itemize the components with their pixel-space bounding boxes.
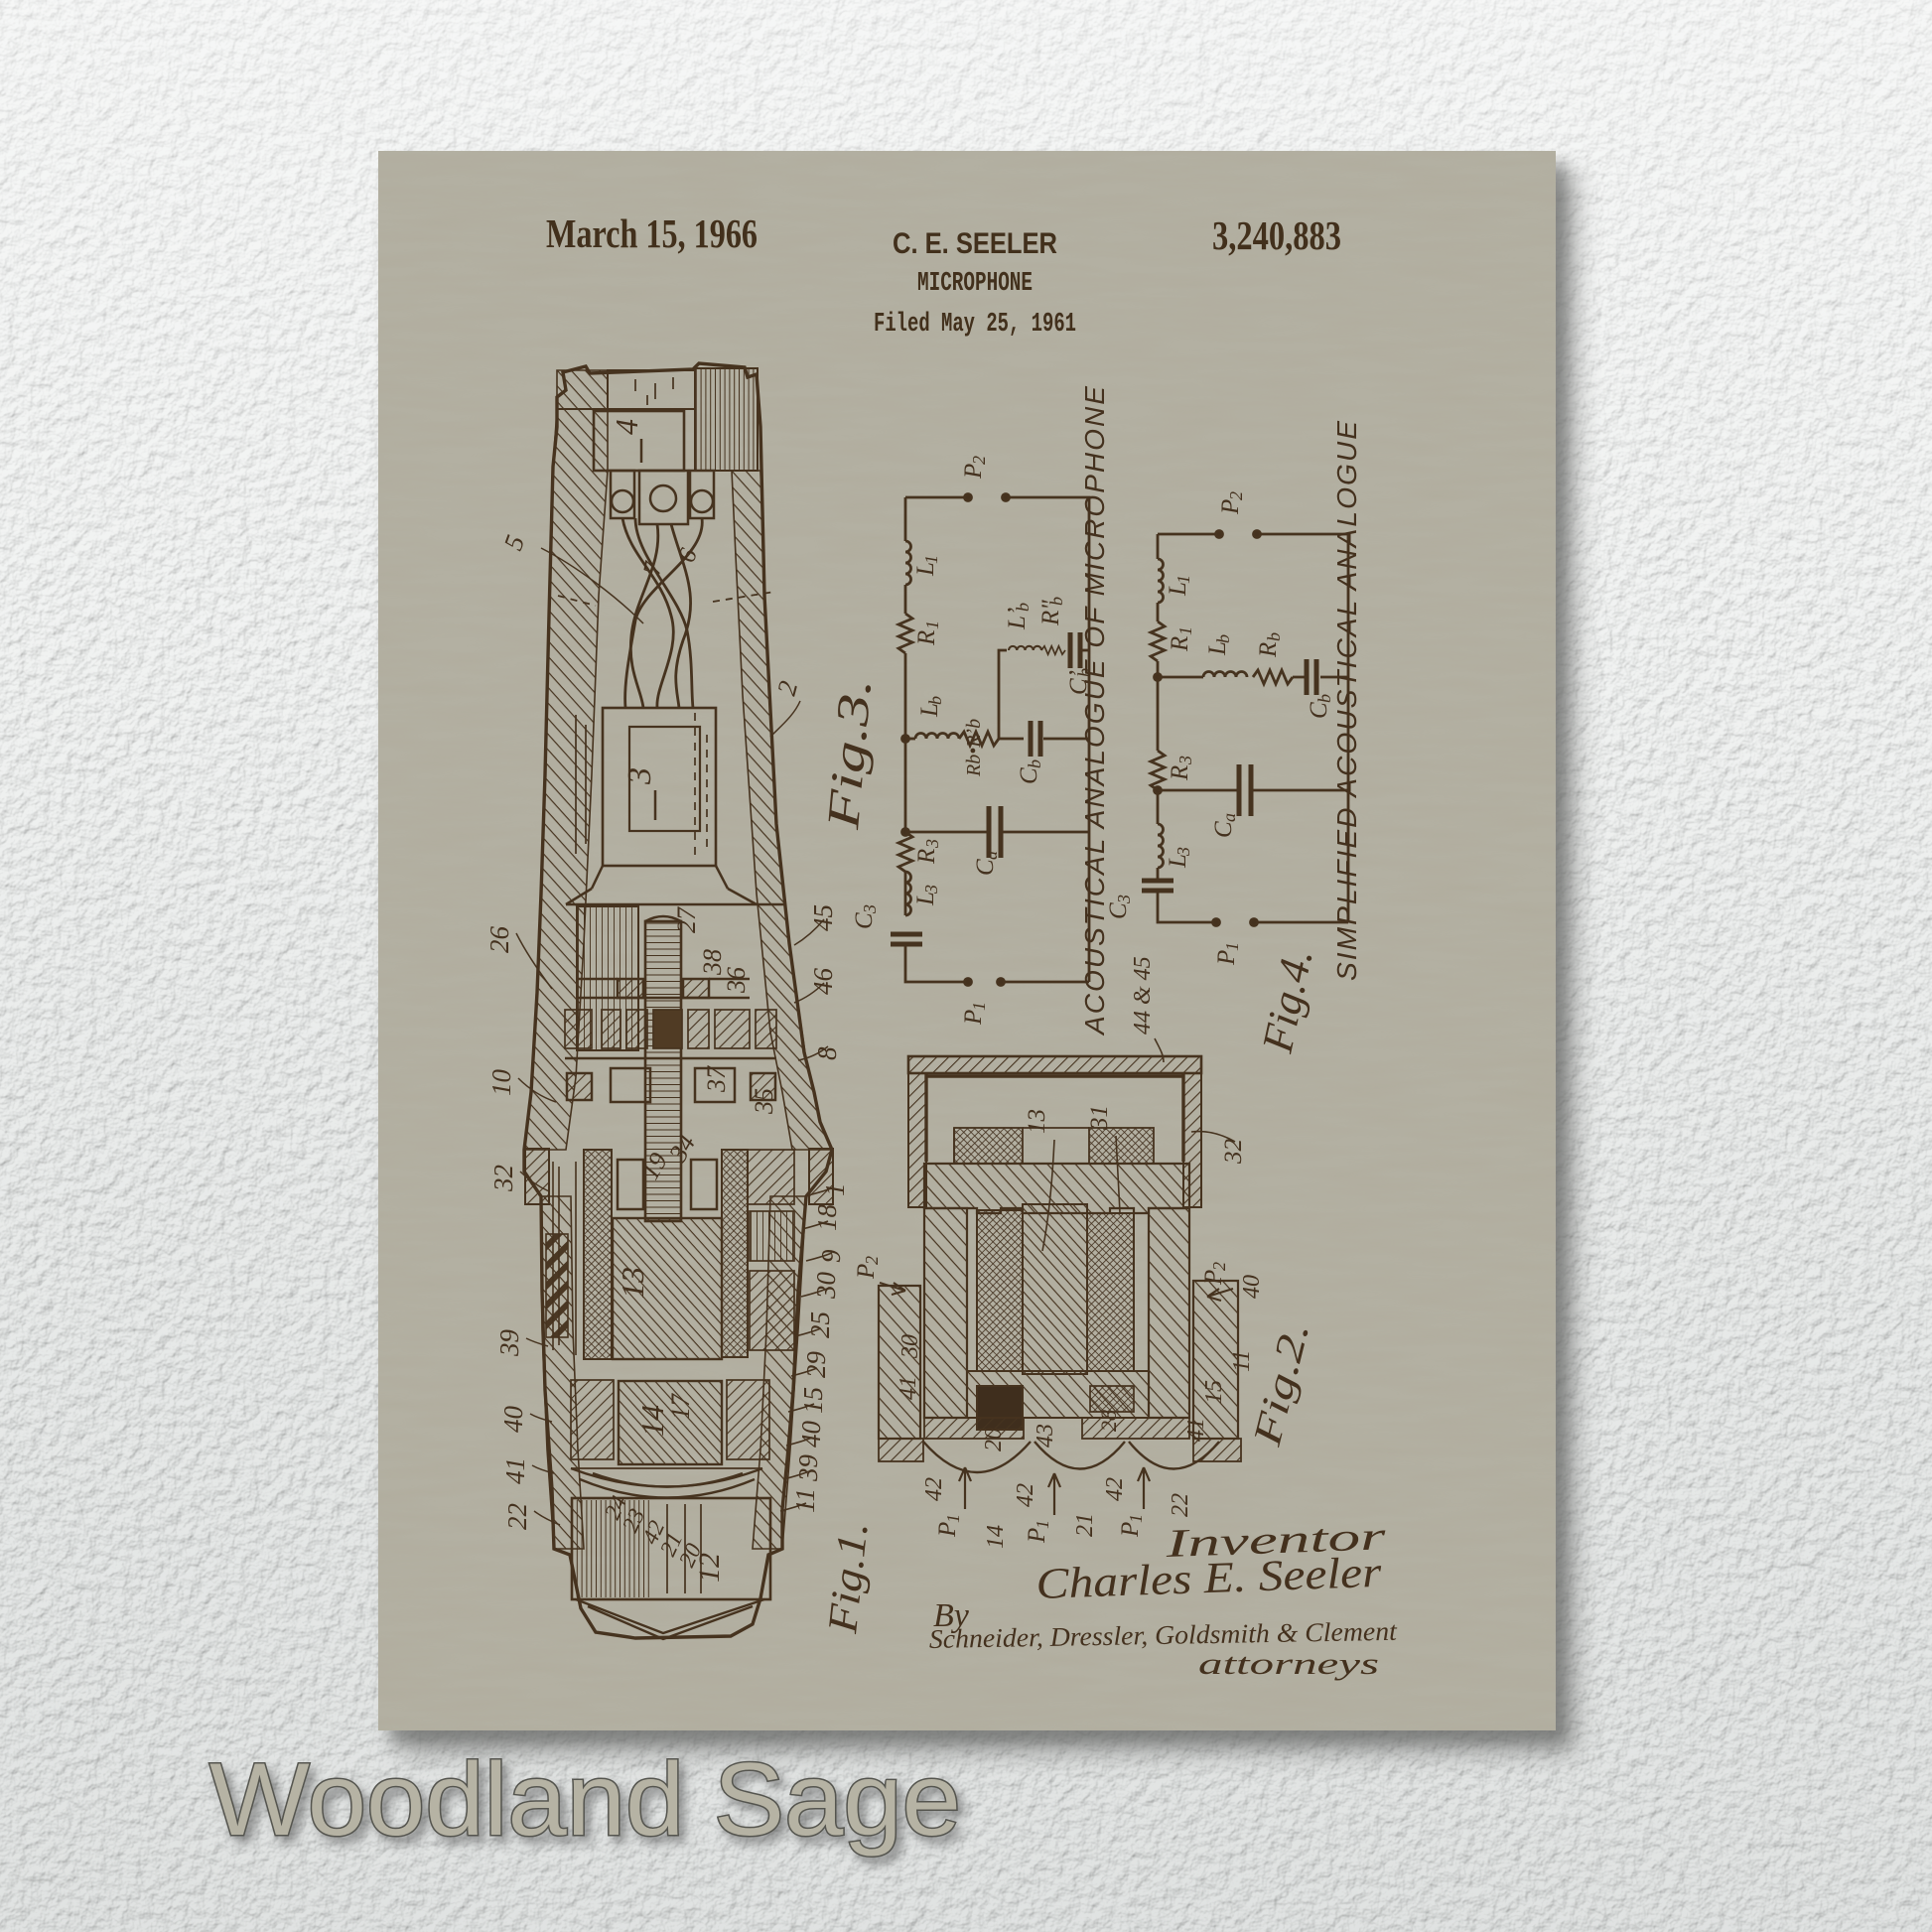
- svg-text:C: C: [1210, 821, 1237, 838]
- svg-text:42: 42: [1013, 1483, 1038, 1507]
- svg-text:P: P: [1024, 1528, 1050, 1544]
- svg-text:C. E. SEELER: C. E. SEELER: [893, 227, 1057, 260]
- svg-text:37: 37: [702, 1065, 731, 1093]
- svg-text:b: b: [1213, 634, 1233, 643]
- svg-text:40: 40: [796, 1421, 826, 1449]
- svg-text:40: 40: [498, 1406, 528, 1434]
- svg-text:b: b: [925, 696, 945, 705]
- svg-text:1: 1: [820, 1183, 850, 1197]
- svg-text:43: 43: [1033, 1424, 1058, 1448]
- svg-text:45: 45: [808, 904, 838, 931]
- svg-text:39: 39: [494, 1329, 524, 1358]
- svg-text:1: 1: [922, 621, 942, 629]
- svg-text:b: b: [1264, 632, 1284, 641]
- svg-text:20: 20: [981, 1428, 1007, 1451]
- svg-text:22: 22: [1168, 1493, 1193, 1517]
- svg-text:P: P: [1217, 499, 1244, 515]
- svg-text:3: 3: [922, 839, 942, 849]
- svg-text:13: 13: [1024, 1109, 1050, 1134]
- svg-text:1: 1: [1175, 626, 1195, 635]
- svg-text:1: 1: [943, 1514, 963, 1523]
- svg-text:1: 1: [1033, 1520, 1052, 1529]
- svg-text:44 & 45: 44 & 45: [1130, 956, 1156, 1035]
- svg-text:9: 9: [816, 1249, 846, 1263]
- svg-text:ACOUSTICAL ANALOGUE OF MICROPH: ACOUSTICAL ANALOGUE OF MICROPHONE: [1079, 384, 1110, 1036]
- svg-text:17: 17: [666, 1393, 695, 1420]
- svg-text:41: 41: [500, 1457, 530, 1484]
- svg-text:26: 26: [484, 926, 514, 954]
- svg-text:31: 31: [1086, 1105, 1113, 1131]
- svg-text:3: 3: [860, 904, 880, 914]
- svg-text:3: 3: [1175, 756, 1195, 765]
- svg-text:1: 1: [1173, 575, 1193, 584]
- svg-text:R: R: [913, 849, 940, 865]
- svg-text:1: 1: [969, 1002, 989, 1011]
- svg-text:32: 32: [1220, 1139, 1247, 1165]
- svg-text:18: 18: [812, 1204, 842, 1232]
- svg-text:21: 21: [1072, 1513, 1098, 1537]
- svg-text:1: 1: [1126, 1514, 1146, 1523]
- svg-text:32: 32: [488, 1165, 518, 1192]
- svg-text:46: 46: [808, 968, 838, 996]
- svg-text:March 15, 1966: March 15, 1966: [546, 210, 758, 256]
- svg-text:1: 1: [1222, 942, 1242, 951]
- svg-text:P: P: [1200, 1270, 1227, 1286]
- svg-text:42: 42: [921, 1477, 947, 1501]
- svg-text:R: R: [1167, 765, 1193, 781]
- svg-text:b: b: [1013, 603, 1033, 612]
- svg-text:P: P: [1117, 1522, 1144, 1538]
- svg-text:11: 11: [790, 1488, 820, 1513]
- svg-text:3: 3: [621, 767, 658, 785]
- svg-text:R: R: [1167, 636, 1193, 652]
- svg-text:C: C: [1105, 902, 1132, 919]
- svg-text:b: b: [1046, 597, 1066, 606]
- svg-text:15: 15: [1201, 1380, 1227, 1404]
- svg-text:40: 40: [1239, 1275, 1265, 1299]
- svg-text:Filed May 25, 1961: Filed May 25, 1961: [874, 310, 1076, 340]
- svg-text:P: P: [934, 1522, 961, 1538]
- svg-text:10: 10: [486, 1069, 516, 1097]
- svg-text:a: a: [1219, 813, 1239, 822]
- svg-text:3: 3: [1114, 895, 1134, 904]
- svg-text:14: 14: [983, 1525, 1009, 1549]
- svg-text:C: C: [1306, 702, 1332, 719]
- svg-text:MICROPHONE: MICROPHONE: [917, 269, 1033, 299]
- svg-text:14: 14: [634, 1405, 670, 1437]
- svg-text:1: 1: [921, 555, 941, 564]
- svg-text:27: 27: [672, 906, 701, 933]
- svg-text:3: 3: [1173, 847, 1193, 857]
- svg-text:SIMPLIFIED ACOUSTICAL ANALOGUE: SIMPLIFIED ACOUSTICAL ANALOGUE: [1331, 419, 1362, 981]
- svg-text:C: C: [1016, 767, 1042, 784]
- svg-text:4: 4: [609, 419, 644, 435]
- svg-text:R: R: [1255, 642, 1282, 658]
- svg-text:3,240,883: 3,240,883: [1212, 212, 1341, 258]
- svg-text:P: P: [960, 464, 987, 480]
- svg-text:30: 30: [811, 1272, 841, 1301]
- svg-text:29: 29: [801, 1351, 831, 1379]
- svg-text:13: 13: [615, 1267, 650, 1299]
- svg-text:41: 41: [896, 1376, 921, 1400]
- svg-text:a: a: [981, 851, 1001, 860]
- svg-text:35: 35: [750, 1088, 778, 1115]
- svg-text:11: 11: [1229, 1350, 1255, 1372]
- svg-text:P: P: [1213, 950, 1240, 966]
- svg-text:C: C: [972, 859, 999, 876]
- svg-text:b: b: [1025, 759, 1044, 768]
- svg-text:3: 3: [921, 885, 941, 895]
- svg-text:P: P: [853, 1264, 880, 1280]
- svg-text:41: 41: [1183, 1418, 1209, 1442]
- svg-text:36: 36: [722, 967, 751, 994]
- svg-text:Woodland Sage: Woodland Sage: [209, 1742, 961, 1858]
- svg-text:22: 22: [502, 1503, 532, 1530]
- svg-text:2: 2: [969, 456, 989, 465]
- svg-text:Rb•Rʼb: Rb•Rʼb: [963, 719, 985, 777]
- svg-text:P: P: [960, 1010, 987, 1026]
- svg-text:2: 2: [862, 1256, 882, 1265]
- svg-text:attorneys: attorneys: [1198, 1646, 1379, 1681]
- svg-text:2: 2: [1209, 1262, 1229, 1271]
- svg-text:2: 2: [1226, 491, 1246, 500]
- svg-text:R: R: [913, 630, 940, 646]
- svg-text:C: C: [851, 912, 878, 929]
- svg-text:30: 30: [897, 1334, 923, 1359]
- svg-text:15: 15: [798, 1387, 828, 1414]
- svg-text:39: 39: [793, 1454, 823, 1483]
- svg-text:25: 25: [805, 1311, 835, 1338]
- svg-text:42: 42: [1102, 1477, 1128, 1501]
